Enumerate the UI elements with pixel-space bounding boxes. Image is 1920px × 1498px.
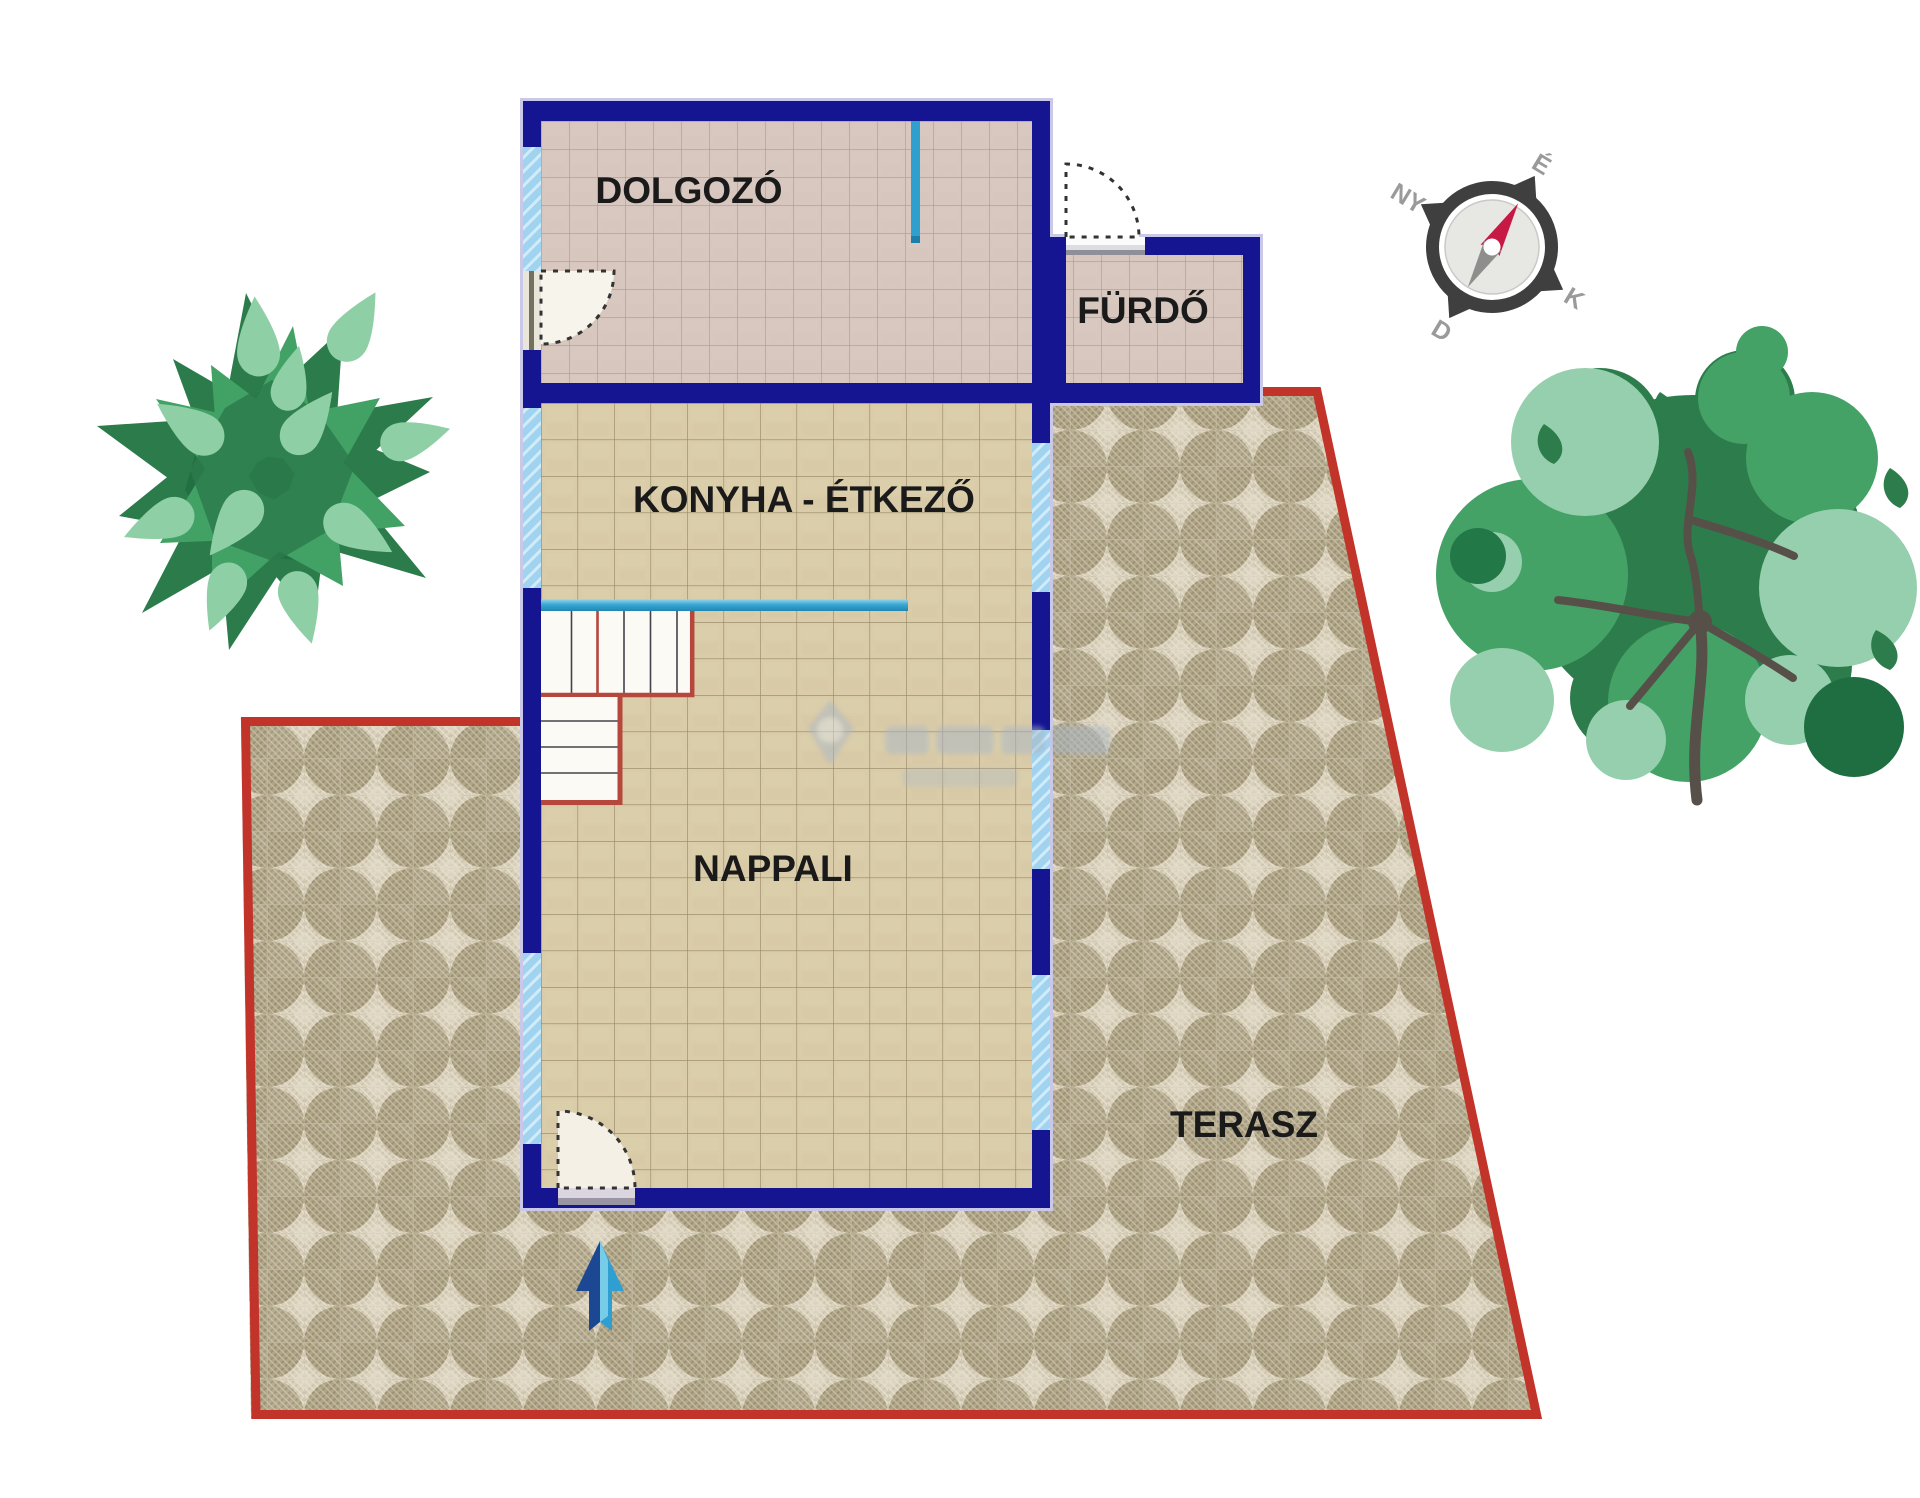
svg-text:DOLGOZÓ: DOLGOZÓ [595, 169, 782, 211]
svg-text:TERASZ: TERASZ [1170, 1104, 1318, 1145]
svg-text:FÜRDŐ: FÜRDŐ [1077, 289, 1209, 331]
svg-text:KONYHA - ÉTKEZŐ: KONYHA - ÉTKEZŐ [633, 478, 975, 520]
svg-text:NY: NY [1386, 178, 1430, 220]
svg-text:K: K [1559, 282, 1589, 315]
svg-text:É: É [1527, 148, 1556, 181]
svg-text:D: D [1427, 314, 1457, 347]
svg-text:NAPPALI: NAPPALI [693, 848, 853, 889]
